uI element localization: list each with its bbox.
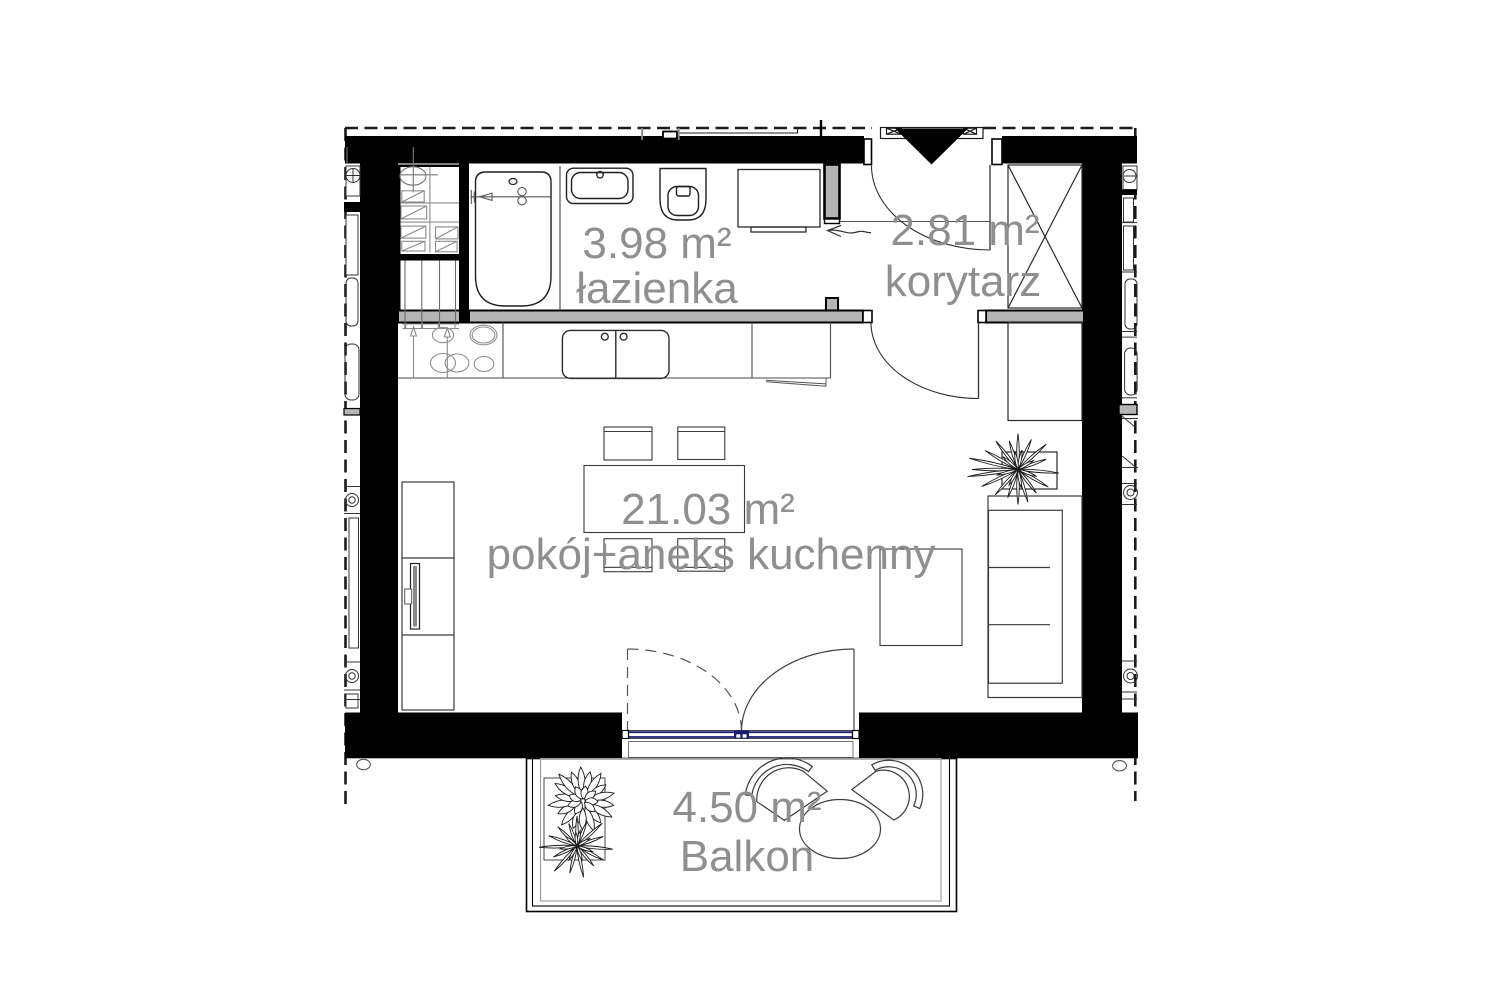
svg-text:4.50 m²: 4.50 m² <box>672 783 821 832</box>
svg-text:3.98 m²: 3.98 m² <box>582 219 731 268</box>
svg-text:2.81 m²: 2.81 m² <box>890 206 1039 255</box>
svg-text:pokój+aneks kuchenny: pokój+aneks kuchenny <box>487 530 936 579</box>
svg-text:łazienka: łazienka <box>576 264 738 313</box>
svg-text:korytarz: korytarz <box>885 257 1041 306</box>
svg-text:21.03 m²: 21.03 m² <box>621 485 795 534</box>
svg-text:Balkon: Balkon <box>680 832 815 881</box>
